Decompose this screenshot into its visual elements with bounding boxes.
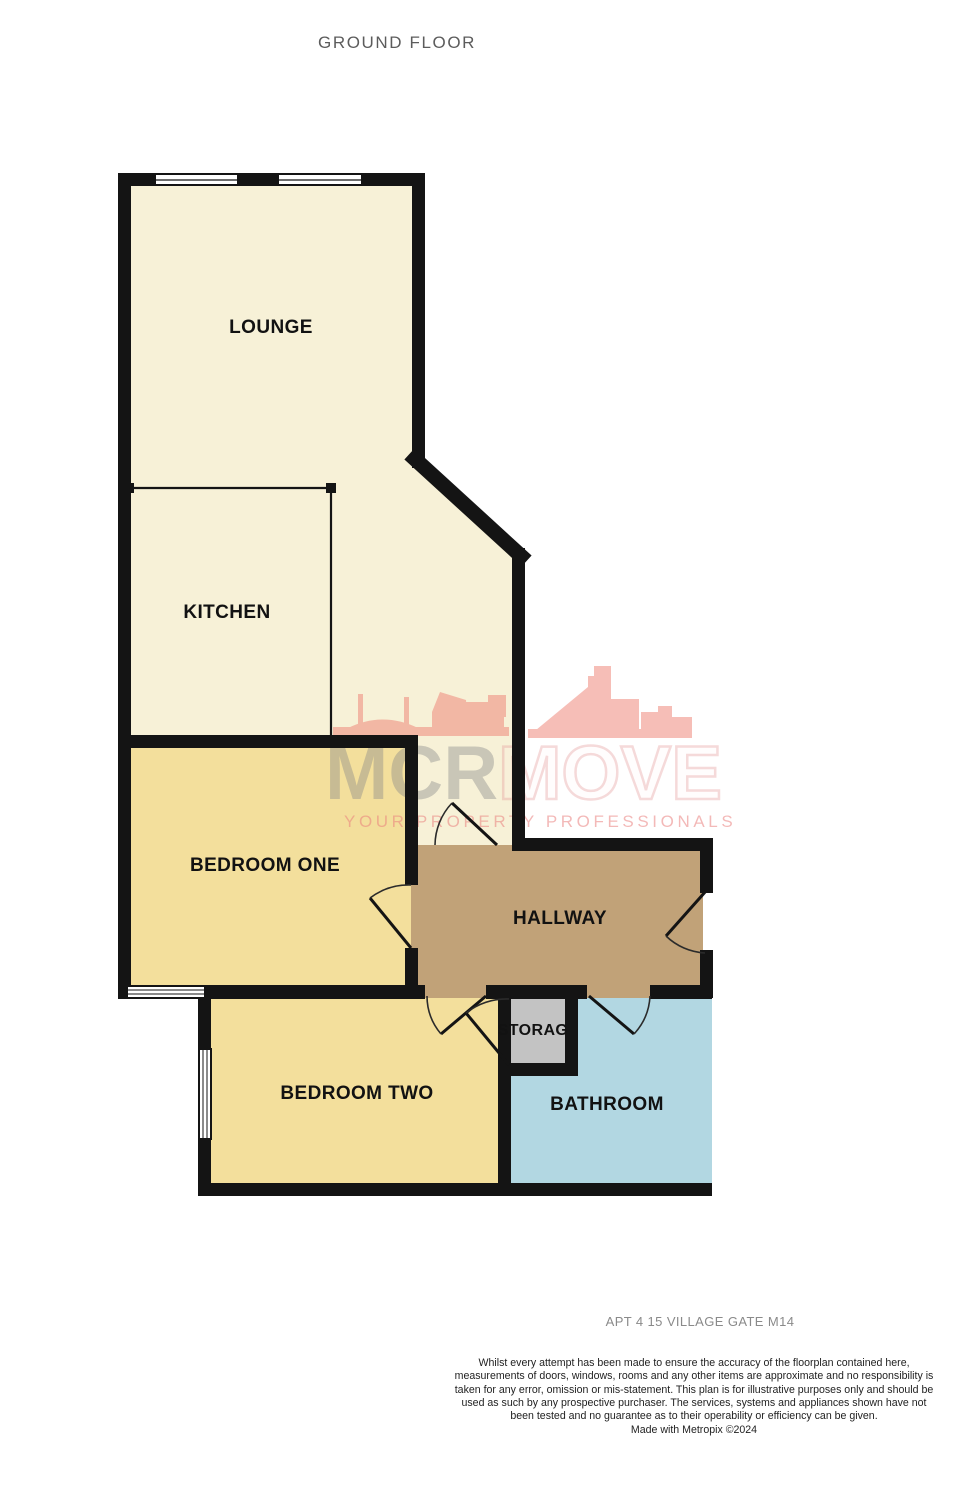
disclaimer-block: Whilst every attempt has been made to en…: [453, 1357, 935, 1437]
corridor-right-wall: [512, 548, 525, 851]
entrance-door-arc: [666, 936, 705, 953]
bathroom-label: BATHROOM: [550, 1094, 664, 1116]
bottom-outer-wall: [198, 1183, 712, 1196]
bedroom-one-window: [127, 986, 205, 998]
walls: [118, 173, 713, 1196]
metropix-credit: Made with Metropix ©2024: [453, 1424, 935, 1437]
bedroom-two-label: BEDROOM TWO: [280, 1083, 433, 1105]
storage-label: STORAG: [498, 1022, 569, 1040]
bedroom-one-door-arc: [370, 885, 411, 898]
bedroom-one-door-leaf: [370, 898, 411, 948]
bedroom-one-right-wall-upper: [405, 735, 418, 885]
bedroom-two-door-arc: [427, 996, 441, 1034]
lounge-right-wall: [412, 173, 425, 468]
hallway-top-wall: [512, 838, 712, 851]
mid-wall-right: [650, 985, 712, 999]
entrance-door-leaf: [666, 891, 706, 936]
bedroom-one-top-wall: [118, 735, 418, 748]
hallway-label: HALLWAY: [513, 908, 607, 930]
disclaimer-text: Whilst every attempt has been made to en…: [453, 1357, 935, 1424]
storage-bottom-wall: [498, 1063, 578, 1076]
bedroom-two-window: [199, 1049, 211, 1139]
diagonal-wall: [415, 459, 521, 556]
walls-layer: [0, 0, 980, 1500]
kitchen-hall-door-leaf: [452, 803, 497, 845]
bathroom-door-leaf: [589, 996, 634, 1034]
left-outer-wall: [118, 173, 131, 998]
mid-wall-center: [205, 985, 425, 999]
property-address: APT 4 15 VILLAGE GATE M14: [606, 1314, 795, 1329]
kitchen-label: KITCHEN: [183, 602, 270, 624]
bedroom-one-label: BEDROOM ONE: [190, 855, 340, 877]
kitchen-hall-door-arc: [435, 803, 452, 845]
floorplan-canvas: GROUND FLOOR: [0, 0, 980, 1500]
lounge-label: LOUNGE: [229, 317, 313, 339]
hallway-right-wall-upper: [700, 838, 713, 893]
bathroom-door-arc: [634, 996, 650, 1034]
